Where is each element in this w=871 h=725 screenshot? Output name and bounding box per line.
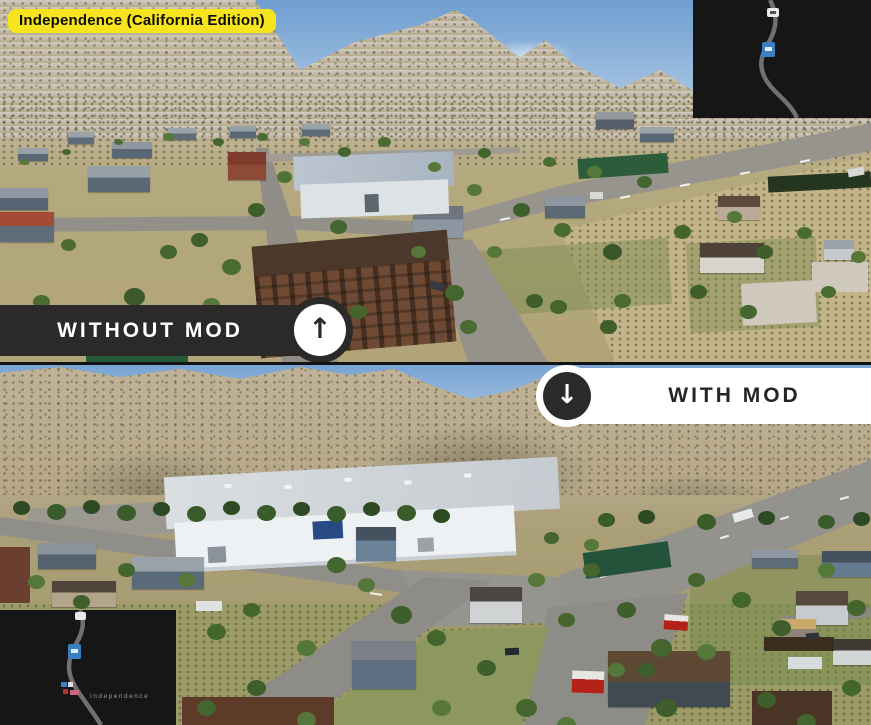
- driveway: [812, 262, 868, 292]
- arrow-down-badge: ↓: [543, 372, 591, 420]
- car: [590, 192, 603, 199]
- house-roof: [182, 697, 334, 725]
- house: [752, 550, 798, 568]
- house: [596, 112, 634, 129]
- truck-red: [664, 614, 689, 631]
- map-marker: [770, 11, 776, 14]
- truck-red: [572, 670, 605, 693]
- map-marker-glyph: [765, 47, 772, 51]
- arrow-up-icon: ↑: [294, 304, 346, 356]
- car: [806, 632, 819, 639]
- house: [230, 126, 256, 138]
- house: [88, 166, 150, 192]
- house: [38, 543, 96, 569]
- warehouse-door: [208, 546, 227, 563]
- house: [302, 124, 330, 136]
- garage: [824, 240, 854, 260]
- house: [356, 527, 396, 561]
- house: [545, 196, 585, 218]
- trailer: [788, 657, 822, 669]
- house: [822, 551, 871, 577]
- arrow-down-icon: ↓: [543, 372, 591, 420]
- scene-without-mod: Independence (California Edition) WITHOU…: [0, 0, 871, 365]
- driveway: [741, 280, 817, 326]
- minimap: Independence: [0, 610, 176, 725]
- house: [68, 132, 94, 144]
- tree-cluster: [0, 0, 13, 10]
- scene-with-mod: WITH MOD ↓ Independence: [0, 365, 871, 725]
- house: [0, 212, 54, 242]
- warehouse-door: [417, 537, 434, 552]
- house: [640, 127, 674, 142]
- hedge: [764, 637, 834, 651]
- skylight: [464, 473, 471, 477]
- house-roof: [752, 691, 832, 725]
- map-service-marker: [68, 682, 73, 687]
- map-service-marker: [63, 689, 68, 694]
- skylight: [404, 480, 411, 484]
- skylight: [284, 485, 291, 489]
- skylight: [224, 484, 231, 488]
- car: [505, 648, 519, 656]
- map-service-marker: [70, 690, 79, 695]
- minimap-town-label: Independence: [90, 693, 149, 700]
- house: [228, 152, 266, 180]
- house: [168, 128, 196, 140]
- truck-white: [196, 601, 222, 611]
- arrow-up-badge: ↑: [294, 304, 346, 356]
- with-mod-label: WITH MOD: [598, 368, 871, 424]
- map-service-marker: [61, 682, 67, 687]
- house: [352, 641, 416, 689]
- minimap: [693, 0, 871, 118]
- house: [718, 196, 760, 220]
- house: [608, 651, 730, 707]
- warehouse-door: [364, 194, 379, 212]
- skylight: [344, 478, 351, 482]
- title-badge: Independence (California Edition): [8, 9, 276, 33]
- house: [52, 581, 116, 607]
- minimap-road: [0, 610, 176, 725]
- house: [132, 557, 204, 589]
- house: [833, 639, 871, 665]
- house: [112, 142, 152, 158]
- building-edge: [0, 547, 30, 603]
- map-marker-glyph: [71, 649, 78, 653]
- map-route-shield-marker: [75, 612, 86, 620]
- tree-cluster: [0, 365, 13, 375]
- minimap-road: [693, 0, 871, 118]
- house: [470, 587, 522, 623]
- title-badge-label: Independence (California Edition): [19, 12, 265, 29]
- company-sign: [312, 520, 343, 540]
- comparison-screenshot: Independence (California Edition) WITHOU…: [0, 0, 871, 725]
- without-mod-label: WITHOUT MOD: [0, 305, 300, 356]
- house: [700, 243, 764, 273]
- house: [18, 148, 48, 161]
- house: [0, 188, 48, 210]
- warehouse: [293, 143, 455, 221]
